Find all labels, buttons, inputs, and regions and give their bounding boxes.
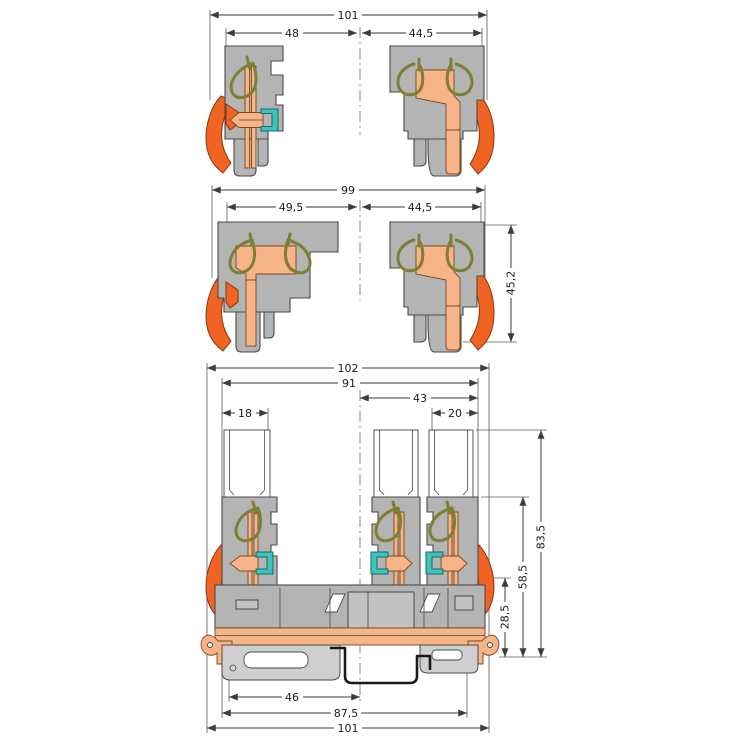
dim-middle-height: 45,2 [505, 225, 518, 342]
terminal-block-middle-left [206, 222, 338, 352]
dim-top-left: 48 [226, 27, 357, 40]
dim-label: 18 [238, 407, 252, 420]
center-pedestal [348, 592, 414, 628]
dim-label: 87,5 [334, 707, 359, 720]
conductor [246, 280, 256, 346]
view-middle: 99 49,5 44,5 45,2 [206, 184, 518, 352]
dim-label: 43 [413, 392, 427, 405]
solder-pin [258, 139, 268, 166]
dim-bottom-overall-bottom: 101 [207, 722, 489, 735]
drawing-canvas: 101 48 44,5 [0, 0, 750, 750]
dim-middle-left: 49,5 [227, 201, 357, 214]
dim-bottom-right-pin: 20 [432, 407, 478, 420]
conductor [446, 306, 460, 350]
marker-strip [374, 430, 418, 497]
dim-label: 83,5 [535, 525, 548, 550]
dim-bottom-overall-top: 102 [207, 362, 489, 375]
side-detail [455, 596, 473, 610]
dim-bottom-base-height: 28,5 [499, 578, 512, 657]
solder-pin [414, 139, 426, 166]
marker-strips [224, 430, 473, 497]
foot-opening [432, 650, 462, 660]
dim-top-overall: 101 [210, 9, 487, 22]
view-top: 101 48 44,5 [206, 9, 494, 176]
dim-label: 99 [341, 184, 355, 197]
solder-pin [414, 315, 426, 342]
terminal-block-middle-right [390, 222, 494, 352]
dim-label: 44,5 [408, 201, 433, 214]
dim-label: 20 [448, 407, 462, 420]
dim-bottom-rail-center: 46 [229, 691, 360, 704]
terminal-block-top-right [390, 46, 494, 176]
dim-label: 44,5 [409, 27, 434, 40]
din-rail [330, 648, 430, 683]
dim-bottom-housing-width: 91 [222, 377, 478, 390]
jumper-busbar [215, 628, 485, 645]
clamp-spring-tail [288, 234, 290, 245]
dim-middle-overall: 99 [212, 184, 485, 197]
dim-label: 58,5 [517, 565, 530, 590]
rail-area [222, 645, 478, 683]
foot-hole [208, 643, 213, 648]
dim-label: 101 [338, 9, 359, 22]
housing-base [215, 585, 485, 628]
technical-drawing: 101 48 44,5 [0, 0, 750, 750]
dim-label: 102 [338, 362, 359, 375]
side-detail [236, 600, 258, 609]
dim-bottom-upper-height: 58,5 [517, 497, 530, 657]
dim-label: 45,2 [505, 271, 518, 296]
dim-label: 46 [285, 691, 299, 704]
dim-label: 49,5 [279, 201, 304, 214]
view-bottom: 102 91 43 18 20 [201, 362, 547, 735]
dim-label: 28,5 [499, 605, 512, 630]
conductor [446, 130, 460, 174]
terminal-block-top-left [206, 46, 283, 176]
dim-label: 48 [285, 27, 299, 40]
foot-hole [488, 643, 493, 648]
marker-strip [224, 430, 270, 497]
dim-label: 101 [338, 722, 359, 735]
dim-label: 91 [342, 377, 356, 390]
dim-bottom-right-half: 43 [360, 392, 478, 405]
dim-top-right: 44,5 [362, 27, 482, 40]
marker-strip [429, 430, 473, 497]
dim-bottom-left-pin: 18 [222, 407, 268, 420]
clamp-spring-tail [250, 234, 252, 245]
foot-opening [244, 652, 308, 668]
dim-bottom-rail-width: 87,5 [222, 707, 467, 720]
dim-middle-right: 44,5 [362, 201, 481, 214]
solder-pin [264, 312, 274, 338]
dim-bottom-total-height: 83,5 [535, 430, 548, 657]
